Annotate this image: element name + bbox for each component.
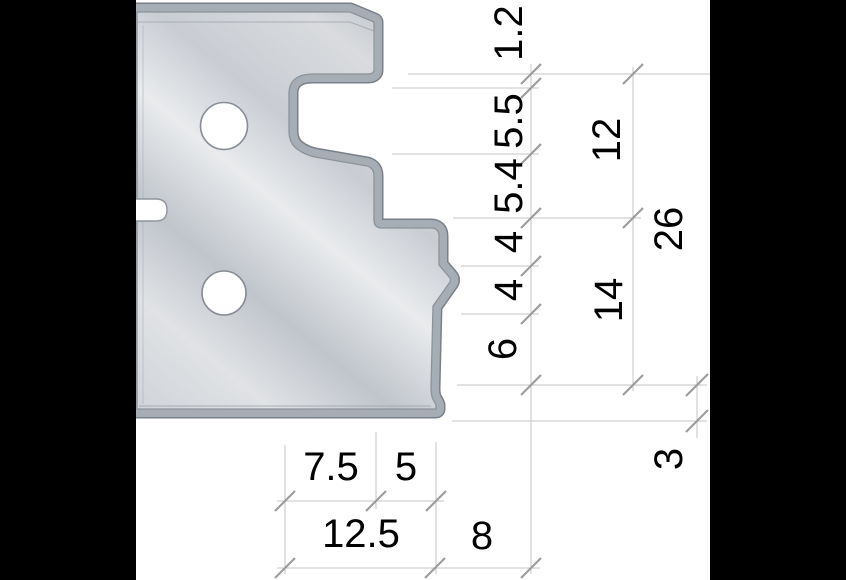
dim-label-12: 12 — [585, 118, 629, 163]
dim-label-8: 8 — [471, 514, 493, 558]
technical-drawing-canvas: 1.2 5.5 5.4 4 4 6 12 14 26 3 7.5 5 12.5 … — [0, 0, 846, 580]
dim-label-5: 5 — [395, 445, 417, 489]
dim-label-5-5: 5.5 — [487, 93, 531, 149]
right-black-bar — [710, 0, 846, 580]
dim-label-14: 14 — [587, 278, 631, 323]
dim-label-5-4: 5.4 — [487, 158, 531, 214]
blade-hole-top — [201, 103, 248, 150]
dim-label-1-2: 1.2 — [487, 5, 531, 61]
blade-hole-bottom — [202, 271, 246, 315]
dim-label-6: 6 — [481, 338, 525, 360]
dim-label-4-lower: 4 — [487, 279, 531, 301]
dim-label-12-5: 12.5 — [322, 512, 400, 556]
dim-label-3: 3 — [647, 448, 691, 470]
dim-label-26: 26 — [647, 207, 691, 252]
dim-label-7-5: 7.5 — [303, 445, 359, 489]
left-black-bar — [0, 0, 136, 580]
dim-label-4-upper: 4 — [487, 231, 531, 253]
drawing-viewport: 1.2 5.5 5.4 4 4 6 12 14 26 3 7.5 5 12.5 … — [0, 0, 846, 580]
